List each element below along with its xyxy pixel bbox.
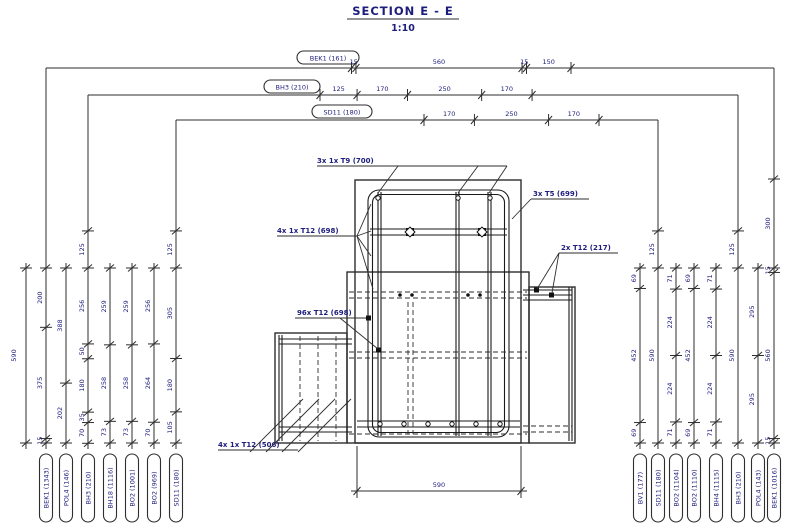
bar-mark-label: BO2 (1001) (128, 469, 136, 506)
dim-value: 224 (666, 383, 674, 395)
dim-value: 224 (706, 383, 714, 395)
rebar-annotations: 3x 1x T9 (700) 3x T5 (699) 4x 1x T12 (69… (218, 157, 618, 452)
dim-value: 15 (764, 266, 772, 274)
drawing-title: SECTION E - E (352, 4, 454, 18)
sd11-top-label: SD11 (180) (324, 109, 361, 117)
dim-value: 15 (520, 58, 528, 66)
dim-value: 69 (684, 274, 692, 282)
t9-label: 3x 1x T9 (700) (317, 157, 374, 165)
bar-mark-label: BV1 (177) (636, 472, 644, 504)
dim-value: 590 (10, 349, 18, 361)
dim-value: 180 (166, 379, 174, 391)
dim-value: 224 (666, 316, 674, 328)
dim-value: 170 (443, 110, 455, 118)
bar-mark-label: BEK1 (1016) (770, 468, 778, 509)
dim-loop-lines (46, 68, 774, 443)
dim-value: 69 (630, 429, 638, 437)
bar-mark-label: BH4 (1115) (712, 469, 720, 506)
dim-value: 15 (36, 437, 44, 445)
bar-mark-label: BH18 (1116) (106, 467, 114, 508)
dim-value: 590 (433, 481, 445, 489)
bar-mark-label: BEK1 (1343) (42, 468, 50, 509)
dim-value: 259 (100, 300, 108, 312)
dim-value: 202 (56, 407, 64, 419)
dim-value: 560 (433, 58, 445, 66)
dim-value: 305 (166, 307, 174, 319)
bar-mark-label: POL4 (146) (62, 470, 70, 506)
dim-value: 125 (332, 85, 344, 93)
dim-value: 105 (166, 421, 174, 433)
bar-sections (366, 196, 554, 426)
dim-value: 250 (438, 85, 450, 93)
t12-top-label: 4x 1x T12 (698) (277, 227, 339, 235)
drawing-scale: 1:10 (391, 23, 415, 34)
dim-value: 125 (728, 243, 736, 255)
t5-label: 3x T5 (699) (533, 190, 578, 198)
dim-value: 73 (122, 428, 130, 436)
dim-value: 590 (648, 349, 656, 361)
dim-value: 256 (144, 300, 152, 312)
bh3-top-label: BH3 (210) (275, 84, 308, 92)
dim-value: 388 (56, 319, 64, 331)
bar-mark-label: POL4 (143) (754, 470, 762, 506)
dim-value: 73 (100, 428, 108, 436)
dim-value: 295 (748, 393, 756, 405)
dim-value: 224 (706, 316, 714, 328)
dim-value: 15 (350, 58, 358, 66)
bar-mark-label: BH3 (210) (84, 471, 92, 504)
dim-value: 256 (78, 300, 86, 312)
dim-value: 170 (501, 85, 513, 93)
dim-value: 50 (78, 347, 86, 355)
bar-mark-label: BO2 (969) (150, 471, 158, 504)
bar-mark-label: SD11 (180) (654, 470, 662, 507)
dim-value: 300 (764, 217, 772, 229)
dim-value: 71 (706, 428, 714, 436)
dim-value: 295 (748, 306, 756, 318)
dim-value: 71 (706, 274, 714, 282)
t12-mid-label: 96x T12 (698) (297, 309, 352, 317)
dim-value: 180 (78, 379, 86, 391)
dimension-chains: 20037515BEK1 (1343)388202POL4 (146)12525… (10, 58, 781, 522)
dim-value: 125 (648, 243, 656, 255)
dim-value: 150 (543, 58, 555, 66)
dim-value: 70 (144, 428, 152, 436)
bar-mark-label: BH3 (210) (734, 471, 742, 504)
dim-value: 170 (376, 85, 388, 93)
dim-value: 71 (666, 428, 674, 436)
bar-mark-label: SD11 (180) (172, 470, 180, 507)
dim-value: 70 (78, 429, 86, 437)
bek1-top-label: BEK1 (161) (310, 55, 347, 63)
dim-value: 560 (764, 349, 772, 361)
dim-value: 264 (144, 377, 152, 389)
bar-mark-label: BO2 (1104) (672, 469, 680, 506)
dim-value: 69 (630, 274, 638, 282)
drawing-sheet: SECTION E - E 1:10 BEK1 (161) BH3 (210) … (0, 0, 800, 531)
dim-value: 590 (728, 349, 736, 361)
dim-value: 250 (505, 110, 517, 118)
section-drawing: SECTION E - E 1:10 BEK1 (161) BH3 (210) … (0, 0, 800, 531)
dim-value: 258 (122, 377, 130, 389)
dim-value: 258 (100, 377, 108, 389)
dim-value: 452 (630, 349, 638, 361)
t12-right-label: 2x T12 (217) (561, 244, 611, 252)
dim-value: 259 (122, 300, 130, 312)
dim-value: 35 (78, 413, 86, 421)
dim-value: 125 (166, 243, 174, 255)
dim-value: 71 (666, 274, 674, 282)
dim-value: 15 (764, 437, 772, 445)
dim-value: 200 (36, 291, 44, 303)
dim-value: 125 (78, 243, 86, 255)
dim-value: 170 (568, 110, 580, 118)
dim-value: 69 (684, 429, 692, 437)
dim-value: 452 (684, 349, 692, 361)
dim-value: 375 (36, 377, 44, 389)
bar-mark-label: BO2 (1110) (690, 469, 698, 506)
